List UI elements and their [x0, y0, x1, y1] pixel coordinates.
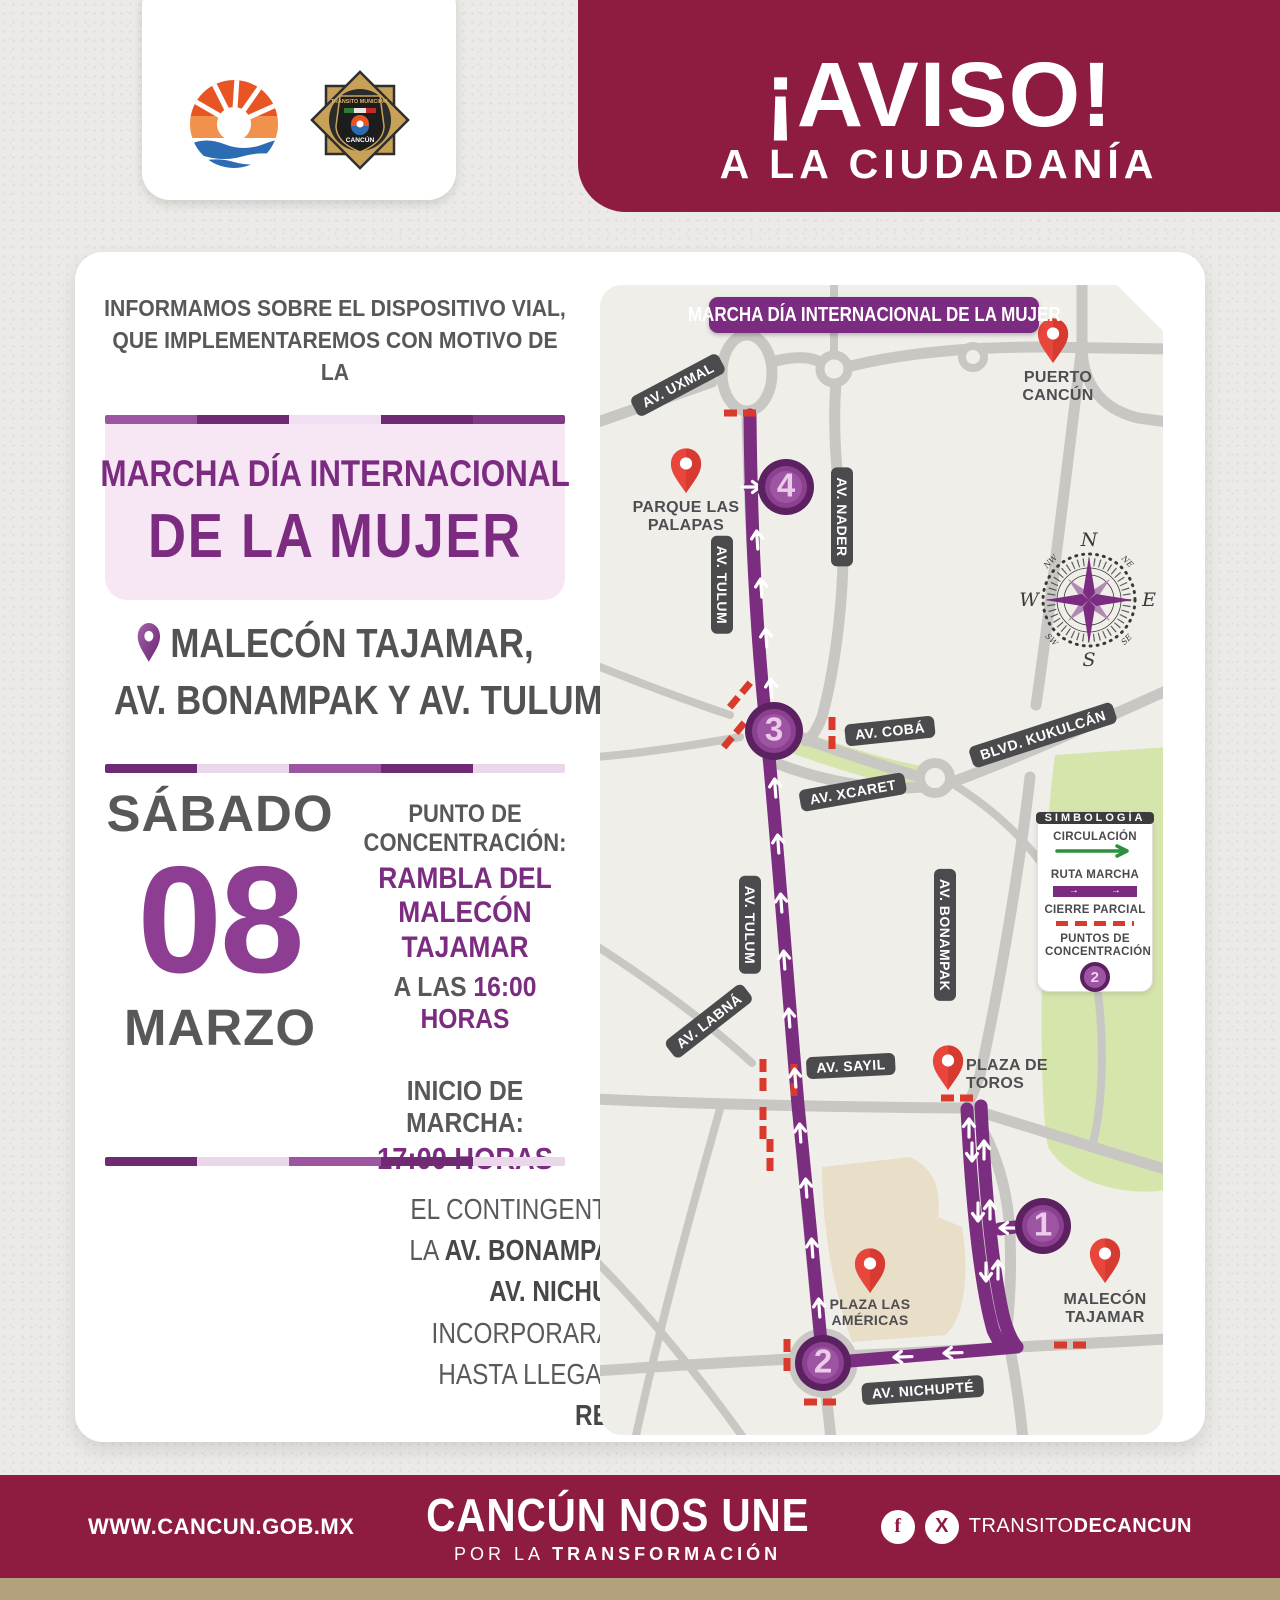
point-3-number: 3: [765, 710, 783, 748]
street-text: AV. COBÁ: [854, 719, 925, 742]
slogan-pre: POR LA: [454, 1544, 543, 1564]
street-text: AV. TULUM: [714, 546, 730, 624]
point-4-number: 4: [777, 466, 795, 504]
compass-n: N: [1080, 530, 1099, 551]
place-label-plaza-las-americas: PLAZA LAS AMÉRICAS: [810, 1297, 930, 1328]
legend-item-cierre: CIERRE PARCIAL: [1044, 904, 1145, 926]
handle-regular: TRANSITO: [969, 1515, 1074, 1537]
facebook-icon: f: [881, 1510, 915, 1544]
social-handle: TRANSITODECANCUN: [969, 1515, 1192, 1538]
legend-label: CIRCULACIÓN: [1053, 831, 1137, 844]
point-1-number: 1: [1034, 1205, 1052, 1243]
compass-e: E: [1141, 589, 1156, 611]
x-twitter-icon: X: [925, 1510, 959, 1544]
legend-label: PUNTOS DE CONCENTRACIÓN: [1045, 933, 1145, 959]
schedule-time-block: PUNTO DE CONCENTRACIÓN: RAMBLA DEL MALEC…: [349, 800, 581, 1177]
legend-title: SIMBOLOGÍA: [1036, 812, 1155, 824]
street-text: AV. NADER: [834, 477, 850, 556]
handle-bold: DECANCUN: [1074, 1515, 1192, 1537]
street-label-tulum-lower: AV. TULUM: [739, 876, 761, 974]
concentration-time: A LAS 16:00 HORAS: [349, 971, 581, 1035]
pin-plaza-de-toros-icon: [933, 1045, 963, 1090]
slogan-bold: TRANSFORMACIÓN: [552, 1544, 781, 1564]
footer-band: WWW.CANCUN.GOB.MX CANCÚN NOS UNE POR LA …: [0, 1475, 1280, 1578]
event-title-line1: MARCHA DÍA INTERNACIONAL: [100, 453, 569, 495]
aviso-banner: ¡AVISO! A LA CIUDADANÍA: [578, 0, 1280, 212]
footer-tan-strip: [0, 1578, 1280, 1600]
divider-bar-top: [105, 415, 565, 424]
map-title-banner: MARCHA DÍA INTERNACIONAL DE LA MUJER: [709, 297, 1039, 333]
intro-text: INFORMAMOS SOBRE EL DISPOSITIVO VIAL, QU…: [96, 292, 574, 389]
pin-malecon-tajamar-icon: [1090, 1238, 1120, 1283]
location-line2: AV. BONAMPAK Y AV. TULUM: [114, 677, 556, 724]
street-label-nader: AV. NADER: [831, 467, 853, 566]
transito-municipal-badge-icon: TRÁNSITO MUNICIPAL CANCÚN: [308, 68, 412, 172]
place-label-malecon-tajamar: MALECÓN TAJAMAR: [1050, 1291, 1160, 1327]
legend-item-puntos: PUNTOS DE CONCENTRACIÓN 2: [1045, 933, 1145, 992]
concentration-point-icon: 2: [1080, 962, 1110, 992]
schedule-date: 08: [105, 843, 335, 998]
compass-w: W: [1019, 589, 1040, 611]
compass-nw: NW: [1041, 553, 1059, 571]
event-title-line2: DE LA MUJER: [148, 501, 522, 572]
logo-card: TRÁNSITO MUNICIPAL CANCÚN: [142, 0, 456, 200]
circulation-arrow-icon: [1053, 844, 1137, 858]
divider-bar-bottom: [105, 1157, 565, 1166]
aviso-title: ¡AVISO!: [765, 52, 1113, 139]
legend-point-number: 2: [1084, 966, 1106, 988]
partial-closure-icon: [1056, 921, 1134, 926]
street-text: AV. SAYIL: [816, 1056, 886, 1076]
location-block: MALECÓN TAJAMAR, AV. BONAMPAK Y AV. TULU…: [75, 620, 595, 724]
map-legend: SIMBOLOGÍA CIRCULACIÓN RUTA MARCHA →→ CI…: [1037, 812, 1153, 992]
street-label-bonampak: AV. BONAMPAK: [934, 869, 956, 1001]
compass-s: S: [1082, 649, 1095, 670]
divider-bar-middle: [105, 764, 565, 773]
website-url: WWW.CANCUN.GOB.MX: [88, 1514, 354, 1540]
route-map: MARCHA DÍA INTERNACIONAL DE LA MUJER AV.…: [600, 285, 1163, 1435]
social-block: f X TRANSITODECANCUN: [881, 1510, 1192, 1544]
legend-label: CIERRE PARCIAL: [1044, 904, 1145, 917]
legend-label: RUTA MARCHA: [1051, 869, 1139, 882]
map-title-text: MARCHA DÍA INTERNACIONAL DE LA MUJER: [688, 304, 1061, 327]
concentration-label: PUNTO DE CONCENTRACIÓN:: [349, 800, 581, 858]
badge-text-line2: CANCÚN: [346, 135, 375, 144]
place-label-puerto-cancun: PUERTO CANCÚN: [1003, 369, 1113, 405]
aviso-subtitle: A LA CIUDADANÍA: [720, 141, 1159, 188]
cancun-sun-logo-icon: [186, 76, 282, 172]
compass-se: SE: [1119, 632, 1133, 646]
event-title-block: MARCHA DÍA INTERNACIONAL DE LA MUJER: [105, 424, 565, 600]
pin-parque-las-palapas-icon: [671, 448, 701, 493]
schedule-month: MARZO: [105, 998, 335, 1057]
street-text: AV. NICHUPTÉ: [871, 1378, 974, 1401]
place-label-plaza-de-toros: PLAZA DE TOROS: [966, 1057, 1052, 1093]
location-pin-icon: [136, 623, 162, 663]
slogan-line1: CANCÚN NOS UNE: [426, 1488, 809, 1542]
badge-text-line1: TRÁNSITO MUNICIPAL: [331, 98, 390, 105]
point-2-number: 2: [814, 1342, 832, 1380]
street-label-tulum-upper: AV. TULUM: [711, 536, 733, 634]
slogan-line2: POR LA TRANSFORMACIÓN: [400, 1544, 836, 1565]
schedule-date-block: SÁBADO 08 MARZO: [105, 784, 335, 1057]
map-background: MARCHA DÍA INTERNACIONAL DE LA MUJER AV.…: [600, 285, 1163, 1435]
concentration-time-prefix: A LAS: [394, 971, 467, 1002]
location-line1-text: MALECÓN TAJAMAR,: [170, 620, 533, 666]
poster: TRÁNSITO MUNICIPAL CANCÚN ¡AVISO! A LA C…: [0, 0, 1280, 1600]
street-text: AV. TULUM: [742, 886, 758, 964]
footer-slogan: CANCÚN NOS UNE POR LA TRANSFORMACIÓN: [400, 1488, 836, 1565]
concentration-place: RAMBLA DEL MALECÓN TAJAMAR: [349, 862, 581, 966]
place-label-parque-las-palapas: PARQUE LAS PALAPAS: [621, 499, 751, 535]
legend-item-ruta: RUTA MARCHA →→: [1051, 869, 1139, 896]
route-bar-icon: →→: [1053, 886, 1137, 897]
march-start-label: INICIO DE MARCHA:: [349, 1075, 581, 1139]
legend-item-circulacion: CIRCULACIÓN: [1053, 831, 1137, 862]
street-text: AV. BONAMPAK: [937, 879, 953, 991]
street-label-sayil: AV. SAYIL: [806, 1053, 896, 1080]
location-line1: MALECÓN TAJAMAR,: [114, 620, 556, 667]
compass-rose-icon: N E S W NW NE SW SE: [1019, 530, 1159, 670]
